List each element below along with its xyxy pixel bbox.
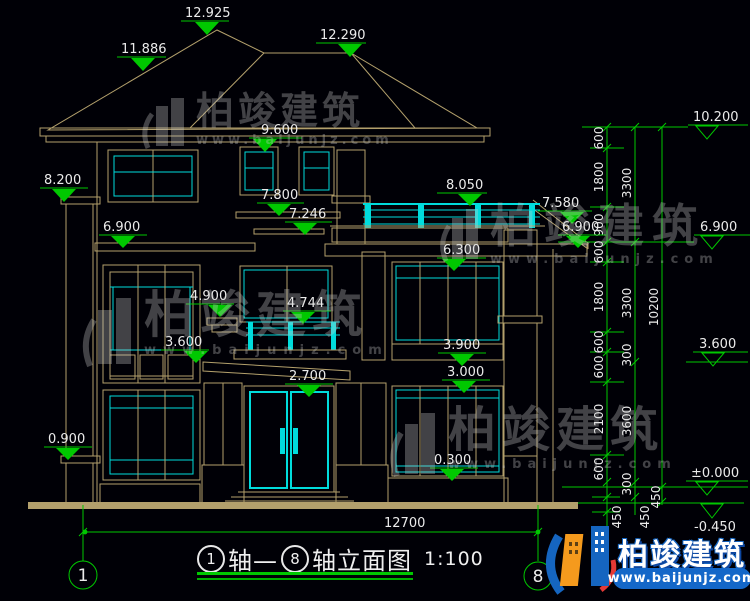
- floor1-left-base: [100, 484, 200, 503]
- dim-label: 1800: [592, 282, 606, 313]
- level-marker: 6.300: [437, 243, 486, 271]
- dim-label: 3600: [620, 406, 634, 437]
- svg-text:9.600: 9.600: [261, 123, 298, 138]
- dim-label: 600: [592, 241, 606, 264]
- level-marker: 12.925: [181, 6, 231, 35]
- balcony2-slab: [234, 350, 346, 359]
- svg-text:3.000: 3.000: [447, 365, 484, 380]
- svg-text:12.290: 12.290: [320, 28, 366, 43]
- svg-text:4.744: 4.744: [287, 296, 324, 311]
- floor1-right-base: [388, 478, 508, 503]
- svg-text:7.800: 7.800: [261, 188, 298, 203]
- level-marker: 9.600: [249, 123, 302, 152]
- svg-text:3.600: 3.600: [699, 337, 736, 352]
- level-marker: 0.300: [430, 453, 478, 481]
- canopy-ledge-490: [207, 318, 237, 332]
- level-marker: 8.200: [40, 173, 88, 202]
- right-pilaster: [498, 230, 542, 503]
- entrance-canopy: [203, 362, 350, 380]
- svg-text:12.925: 12.925: [185, 6, 231, 21]
- floor2-left-window: [103, 265, 200, 383]
- axis-circle-1: 1: [197, 545, 225, 573]
- elevation-canvas: 600 1800 900 600 1800 600 600 2100 600 3…: [0, 0, 750, 601]
- svg-text:0.900: 0.900: [48, 432, 85, 447]
- level-marker: 4.744: [283, 296, 331, 324]
- dim-label: 450: [649, 486, 663, 509]
- svg-text:11.886: 11.886: [121, 42, 167, 57]
- center-chimney: [332, 150, 370, 244]
- axis-bubble-1-label: 1: [78, 566, 89, 586]
- ground-line: [28, 502, 578, 509]
- dim-label: 2100: [592, 404, 606, 435]
- svg-text:7.246: 7.246: [289, 207, 326, 222]
- svg-text:±0.000: ±0.000: [691, 466, 739, 481]
- level-marker: 11.886: [117, 42, 167, 71]
- floor1-right-window: [388, 386, 508, 503]
- pillar-brick-base: [66, 463, 93, 503]
- brand-logo: 柏竣建筑 www.baijunjz.com: [543, 518, 750, 601]
- roof-hip-lines: [190, 53, 415, 128]
- dim-label: 3300: [620, 288, 634, 319]
- svg-text:7.580: 7.580: [542, 196, 579, 211]
- caption-joiner: 轴—: [228, 541, 278, 576]
- svg-text:8.200: 8.200: [44, 173, 81, 188]
- caption-underline-thick: [197, 572, 413, 575]
- dim-label: 3300: [620, 168, 634, 199]
- level-marker: 3.900: [438, 338, 486, 366]
- dim-label: 600: [592, 356, 606, 379]
- svg-text:4.900: 4.900: [190, 289, 227, 304]
- door-handle-right: [293, 428, 298, 454]
- dim-label: 300: [620, 344, 634, 367]
- axis-circle-8: 8: [281, 545, 309, 573]
- logo-building-icon: [543, 518, 621, 598]
- floor3-left-window: [108, 150, 198, 202]
- cad-elevation-drawing: 600 1800 900 600 1800 600 600 2100 600 3…: [0, 0, 750, 601]
- logo-url: www.baijunjz.com: [613, 568, 750, 589]
- level-marker: 7.246: [285, 207, 332, 235]
- caption-scale: 1:100: [424, 548, 484, 570]
- dim-label: 300: [620, 473, 634, 496]
- mid-brick-pilaster: [362, 252, 385, 360]
- dim-label: 10200: [647, 288, 661, 326]
- roof-surface: [48, 30, 477, 130]
- svg-text:3.600: 3.600: [165, 335, 202, 350]
- level-marker: ±0.000: [686, 466, 748, 495]
- total-width-label: 12700: [384, 516, 425, 531]
- dim-label: 600: [592, 458, 606, 481]
- drawing-title: 1 轴— 8 轴立面图 1:100: [196, 541, 484, 576]
- caption-suffix: 轴立面图: [312, 541, 412, 576]
- door-handle-left: [280, 428, 285, 454]
- svg-text:6.900: 6.900: [700, 220, 737, 235]
- svg-text:10.200: 10.200: [693, 110, 739, 125]
- pilaster-shaft: [66, 204, 93, 456]
- balcony3-slab-hatch: [332, 228, 508, 242]
- level-marker: 6.900: [99, 220, 147, 248]
- svg-text:0.300: 0.300: [434, 453, 471, 468]
- svg-text:6.900: 6.900: [562, 220, 599, 235]
- right-scale-markers: 10.200 6.900 3.600 ±0.000 -0.450: [686, 110, 750, 535]
- dim-label: 1800: [592, 162, 606, 193]
- window-ledge-2: [254, 229, 324, 234]
- floor1-left-window: [100, 390, 200, 503]
- floor3-band: [95, 243, 255, 251]
- level-marker: 10.200: [688, 110, 748, 139]
- svg-text:3.900: 3.900: [443, 338, 480, 353]
- level-marker: 6.900: [694, 220, 750, 249]
- floor2-center-balcony: [234, 266, 346, 359]
- dim-label: 600: [592, 127, 606, 150]
- dim-label: 600: [592, 331, 606, 354]
- axis-bubble-8-label: 8: [533, 567, 544, 587]
- svg-text:8.050: 8.050: [446, 178, 483, 193]
- svg-text:6.900: 6.900: [103, 220, 140, 235]
- svg-text:2.700: 2.700: [289, 369, 326, 384]
- svg-text:6.300: 6.300: [443, 243, 480, 258]
- level-marker: 8.050: [437, 178, 487, 206]
- level-marker: 3.000: [442, 365, 490, 393]
- caption-underline-thin: [197, 578, 413, 580]
